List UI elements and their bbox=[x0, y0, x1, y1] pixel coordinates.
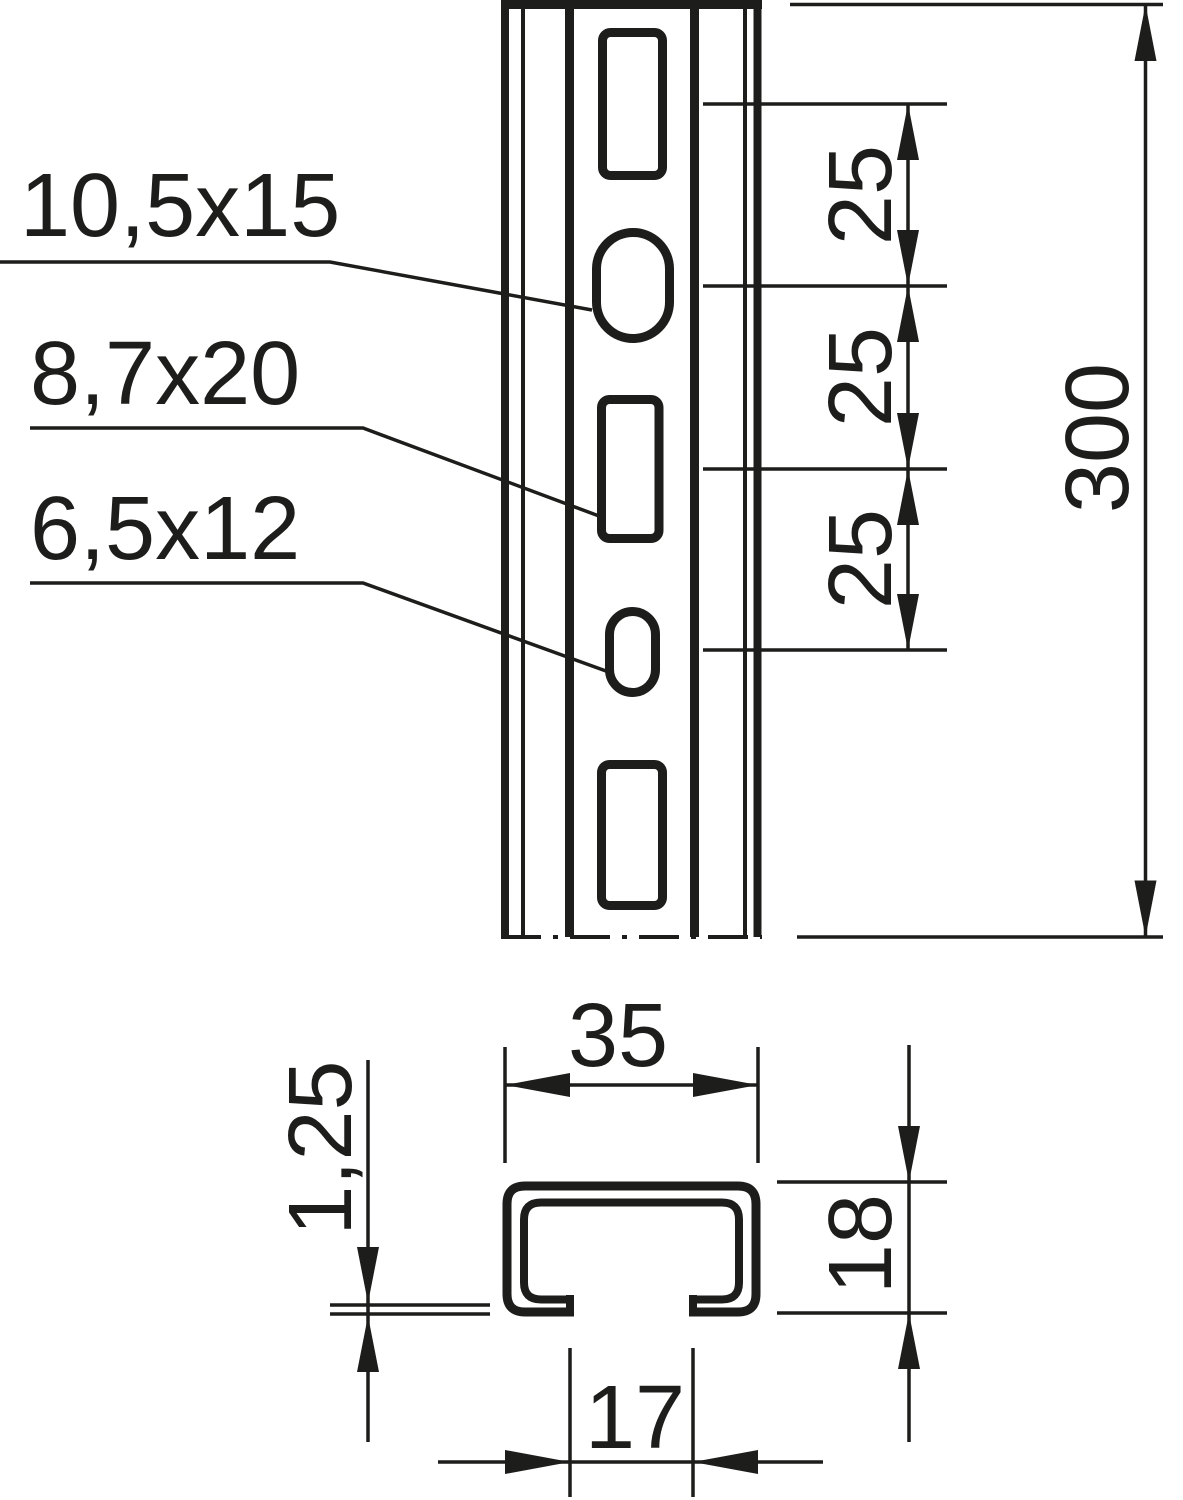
slot-oblong-10-5x15 bbox=[597, 233, 670, 339]
arrow-down-icon bbox=[357, 1247, 379, 1303]
thickness-dimension: 1,25 bbox=[271, 1060, 490, 1442]
arrow-up-icon bbox=[357, 1316, 379, 1372]
profile-rail-drawing: 10,5x15 8,7x20 6,5x12 25 25 25 bbox=[0, 0, 1183, 1500]
thickness-label: 1,25 bbox=[271, 1060, 371, 1235]
slot-size-label-6-5x12: 6,5x12 bbox=[30, 479, 300, 579]
technical-drawing-page: 10,5x15 8,7x20 6,5x12 25 25 25 bbox=[0, 0, 1183, 1500]
leader-line-6-5x12 bbox=[30, 583, 606, 671]
pitch-label-1: 25 bbox=[811, 145, 911, 245]
arrow-down-icon bbox=[1135, 881, 1157, 938]
width-label: 35 bbox=[568, 986, 668, 1086]
profile-inner-contour bbox=[524, 1203, 739, 1300]
arrow-up-icon bbox=[898, 1313, 920, 1369]
arrow-down-icon bbox=[898, 1126, 920, 1182]
opening-dimension: 17 bbox=[438, 1348, 823, 1497]
slot-rect-2 bbox=[602, 765, 663, 906]
height-label: 18 bbox=[811, 1194, 911, 1294]
arrow-up-icon bbox=[1135, 5, 1157, 62]
pitch-label-3: 25 bbox=[811, 509, 911, 609]
opening-label: 17 bbox=[585, 1368, 685, 1468]
slot-size-label-8-7x20: 8,7x20 bbox=[30, 324, 300, 424]
width-dimension: 35 bbox=[505, 986, 758, 1163]
pitch-label-2: 25 bbox=[811, 327, 911, 427]
slot-rect-8-7x20 bbox=[602, 400, 660, 539]
pitch-dimension: 25 25 25 bbox=[703, 104, 947, 650]
slot-oblong-6-5x12 bbox=[610, 612, 656, 693]
arrow-right-icon bbox=[505, 1450, 570, 1474]
slot-size-label-10-5x15: 10,5x15 bbox=[20, 156, 340, 256]
height-dimension: 18 bbox=[777, 1045, 947, 1442]
arrow-right-icon bbox=[693, 1073, 758, 1097]
section-view: 35 1,25 18 17 bbox=[271, 986, 947, 1497]
arrow-left-icon bbox=[505, 1073, 570, 1097]
arrow-left-icon bbox=[693, 1450, 758, 1474]
front-view: 10,5x15 8,7x20 6,5x12 25 25 25 bbox=[0, 4, 1163, 937]
length-label: 300 bbox=[1048, 363, 1148, 513]
slot-rect-1 bbox=[603, 33, 663, 176]
